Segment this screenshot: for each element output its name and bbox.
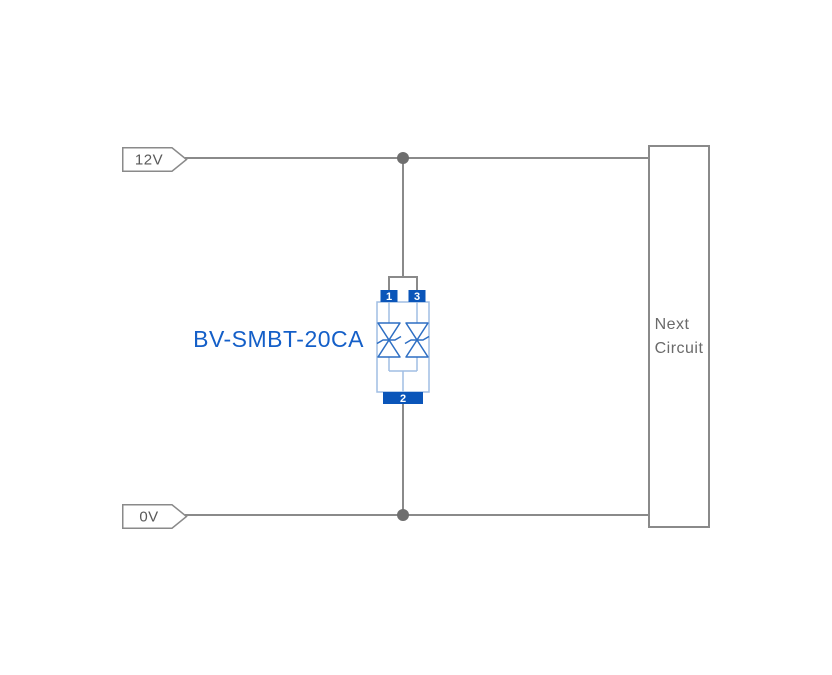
next-circuit-line2: Circuit — [655, 337, 704, 360]
net-label-12v-text: 12V — [135, 152, 163, 169]
junction-dot-bottom — [397, 509, 409, 521]
next-circuit-line1: Next — [655, 313, 704, 336]
next-circuit-box: Next Circuit — [648, 145, 710, 528]
pad-2-label: 2 — [400, 393, 406, 405]
circuit-diagram: 12V 0V 1 3 2 BV-SMBT-20CA — [0, 0, 832, 675]
junction-dot-top — [397, 152, 409, 164]
component-label: BV-SMBT-20CA — [158, 326, 364, 353]
net-label-0v-text: 0V — [139, 509, 158, 526]
pad-1-label: 1 — [386, 291, 392, 303]
tvs-component: 1 3 2 — [360, 280, 446, 410]
net-label-12v: 12V — [122, 147, 188, 172]
wire-0v-rail — [185, 514, 649, 516]
wire-branch-upper — [402, 158, 404, 278]
wire-12v-rail — [185, 157, 649, 159]
wire-pin-split-bar — [388, 276, 418, 278]
wire-branch-lower — [402, 403, 404, 515]
net-label-0v: 0V — [122, 504, 188, 529]
next-circuit-text: Next Circuit — [655, 313, 704, 359]
pad-3-label: 3 — [414, 291, 420, 303]
